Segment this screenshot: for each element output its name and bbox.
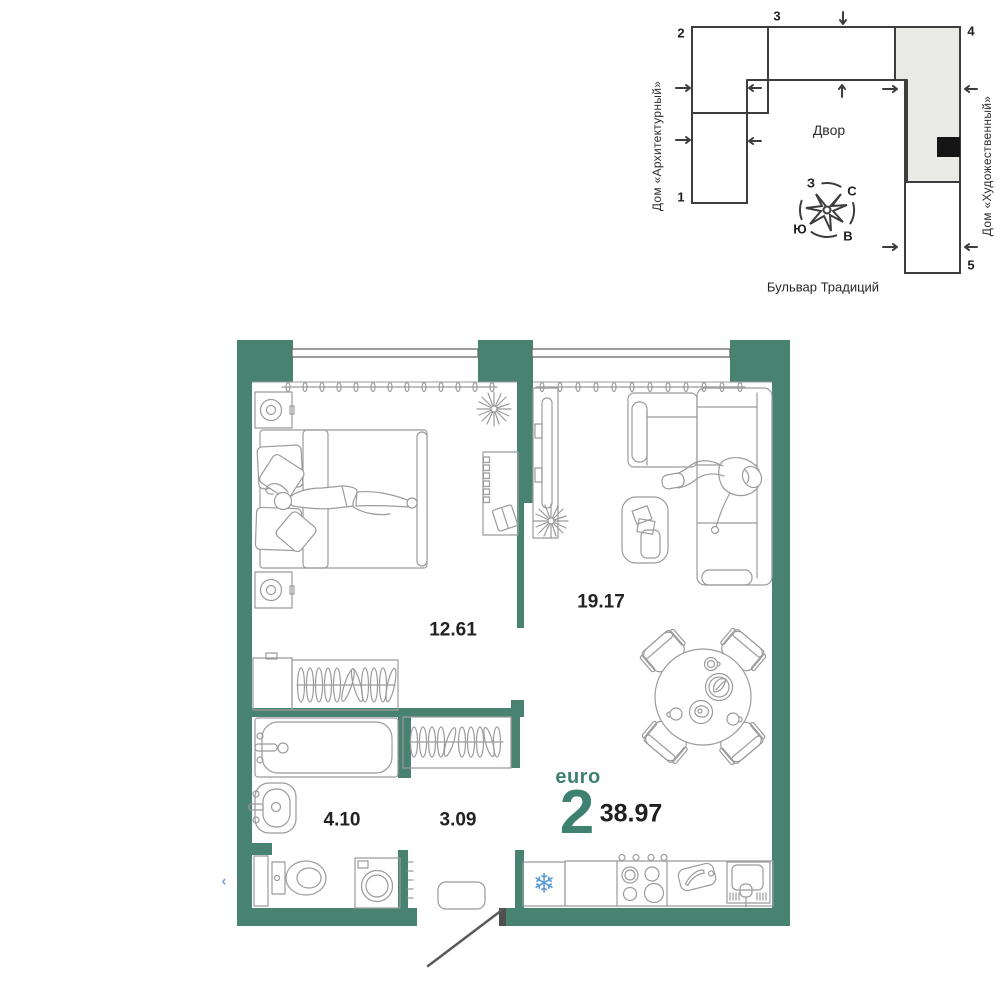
- fridge-snowflake-icon: ❄: [533, 871, 556, 898]
- bathroom-area-label: 4.10: [324, 811, 361, 830]
- cutting-board: [677, 862, 717, 892]
- courtyard-label: Двор: [813, 123, 845, 137]
- highlighted-building-section: [895, 27, 960, 182]
- section-number-5: 5: [967, 259, 974, 272]
- bedroom-shelf: [483, 452, 518, 535]
- compass-east-label: В: [843, 230, 852, 243]
- section-number-3: 3: [773, 10, 780, 23]
- compass-north-label: С: [847, 185, 856, 198]
- courtyard-boundary: [747, 80, 907, 203]
- building-right-label: Дом «Художественный»: [981, 96, 993, 236]
- cabinet: [253, 658, 292, 710]
- living-room-furniture: [533, 383, 772, 767]
- stove: [619, 855, 667, 903]
- bedroom-furniture: [255, 383, 518, 609]
- nightstand-bottom: [255, 572, 294, 608]
- floor-plan-drawing: [237, 340, 790, 966]
- double-bed: [255, 430, 427, 568]
- bathroom-door-leaf: [254, 856, 268, 906]
- apartment-location-marker: [937, 137, 960, 157]
- hallway-area-label: 3.09: [440, 811, 477, 830]
- person-on-sofa: [661, 458, 765, 534]
- apartment-rooms-count: 2: [560, 782, 594, 844]
- entrance-rug: [438, 882, 485, 909]
- nightstand-top: [255, 392, 294, 428]
- apartment-total-area: 38.97: [600, 802, 663, 827]
- site-section-5: [905, 182, 960, 273]
- compass-south-label: Ю: [793, 223, 806, 236]
- section-number-1: 1: [677, 191, 684, 204]
- wardrobe-right: [403, 717, 511, 768]
- kitchen-sink: [727, 862, 770, 907]
- corner-sofa: [628, 388, 772, 585]
- kitchen-counter: [565, 861, 773, 906]
- site-section-3: [768, 27, 895, 80]
- toilet: [272, 861, 326, 895]
- site-section-2: [692, 27, 768, 113]
- living-area-label: 19.17: [577, 593, 625, 612]
- entrance-door-swing: [428, 910, 502, 966]
- coffee-table: [622, 497, 668, 563]
- washbasin: [249, 783, 296, 833]
- living-window: [532, 349, 730, 357]
- bedroom-plant-icon: [477, 392, 511, 426]
- entrance-direction-icon: ‹: [222, 874, 227, 889]
- bedroom-window: [292, 349, 478, 357]
- plan-graphics: [0, 0, 1000, 1000]
- street-label: Бульвар Традиций: [767, 281, 879, 294]
- dining-table: [655, 649, 751, 745]
- apartment-plan-page: Дом «Архитектурный» Дом «Художественный»…: [0, 0, 1000, 1000]
- site-section-1: [692, 113, 747, 203]
- bathtub: [255, 718, 398, 777]
- section-number-4: 4: [967, 25, 974, 38]
- compass-west-label: З: [807, 177, 815, 190]
- dining-set: [638, 626, 768, 767]
- kitchen-fixtures: [523, 855, 773, 908]
- entrance: [428, 882, 506, 966]
- site-plan-drawing: [676, 12, 977, 273]
- walls: [237, 340, 790, 926]
- section-number-2: 2: [677, 27, 684, 40]
- bedroom-area-label: 12.61: [429, 621, 477, 640]
- wardrobe-top: [292, 660, 398, 710]
- living-plant-icon: [534, 504, 568, 538]
- building-left-label: Дом «Архитектурный»: [651, 81, 663, 211]
